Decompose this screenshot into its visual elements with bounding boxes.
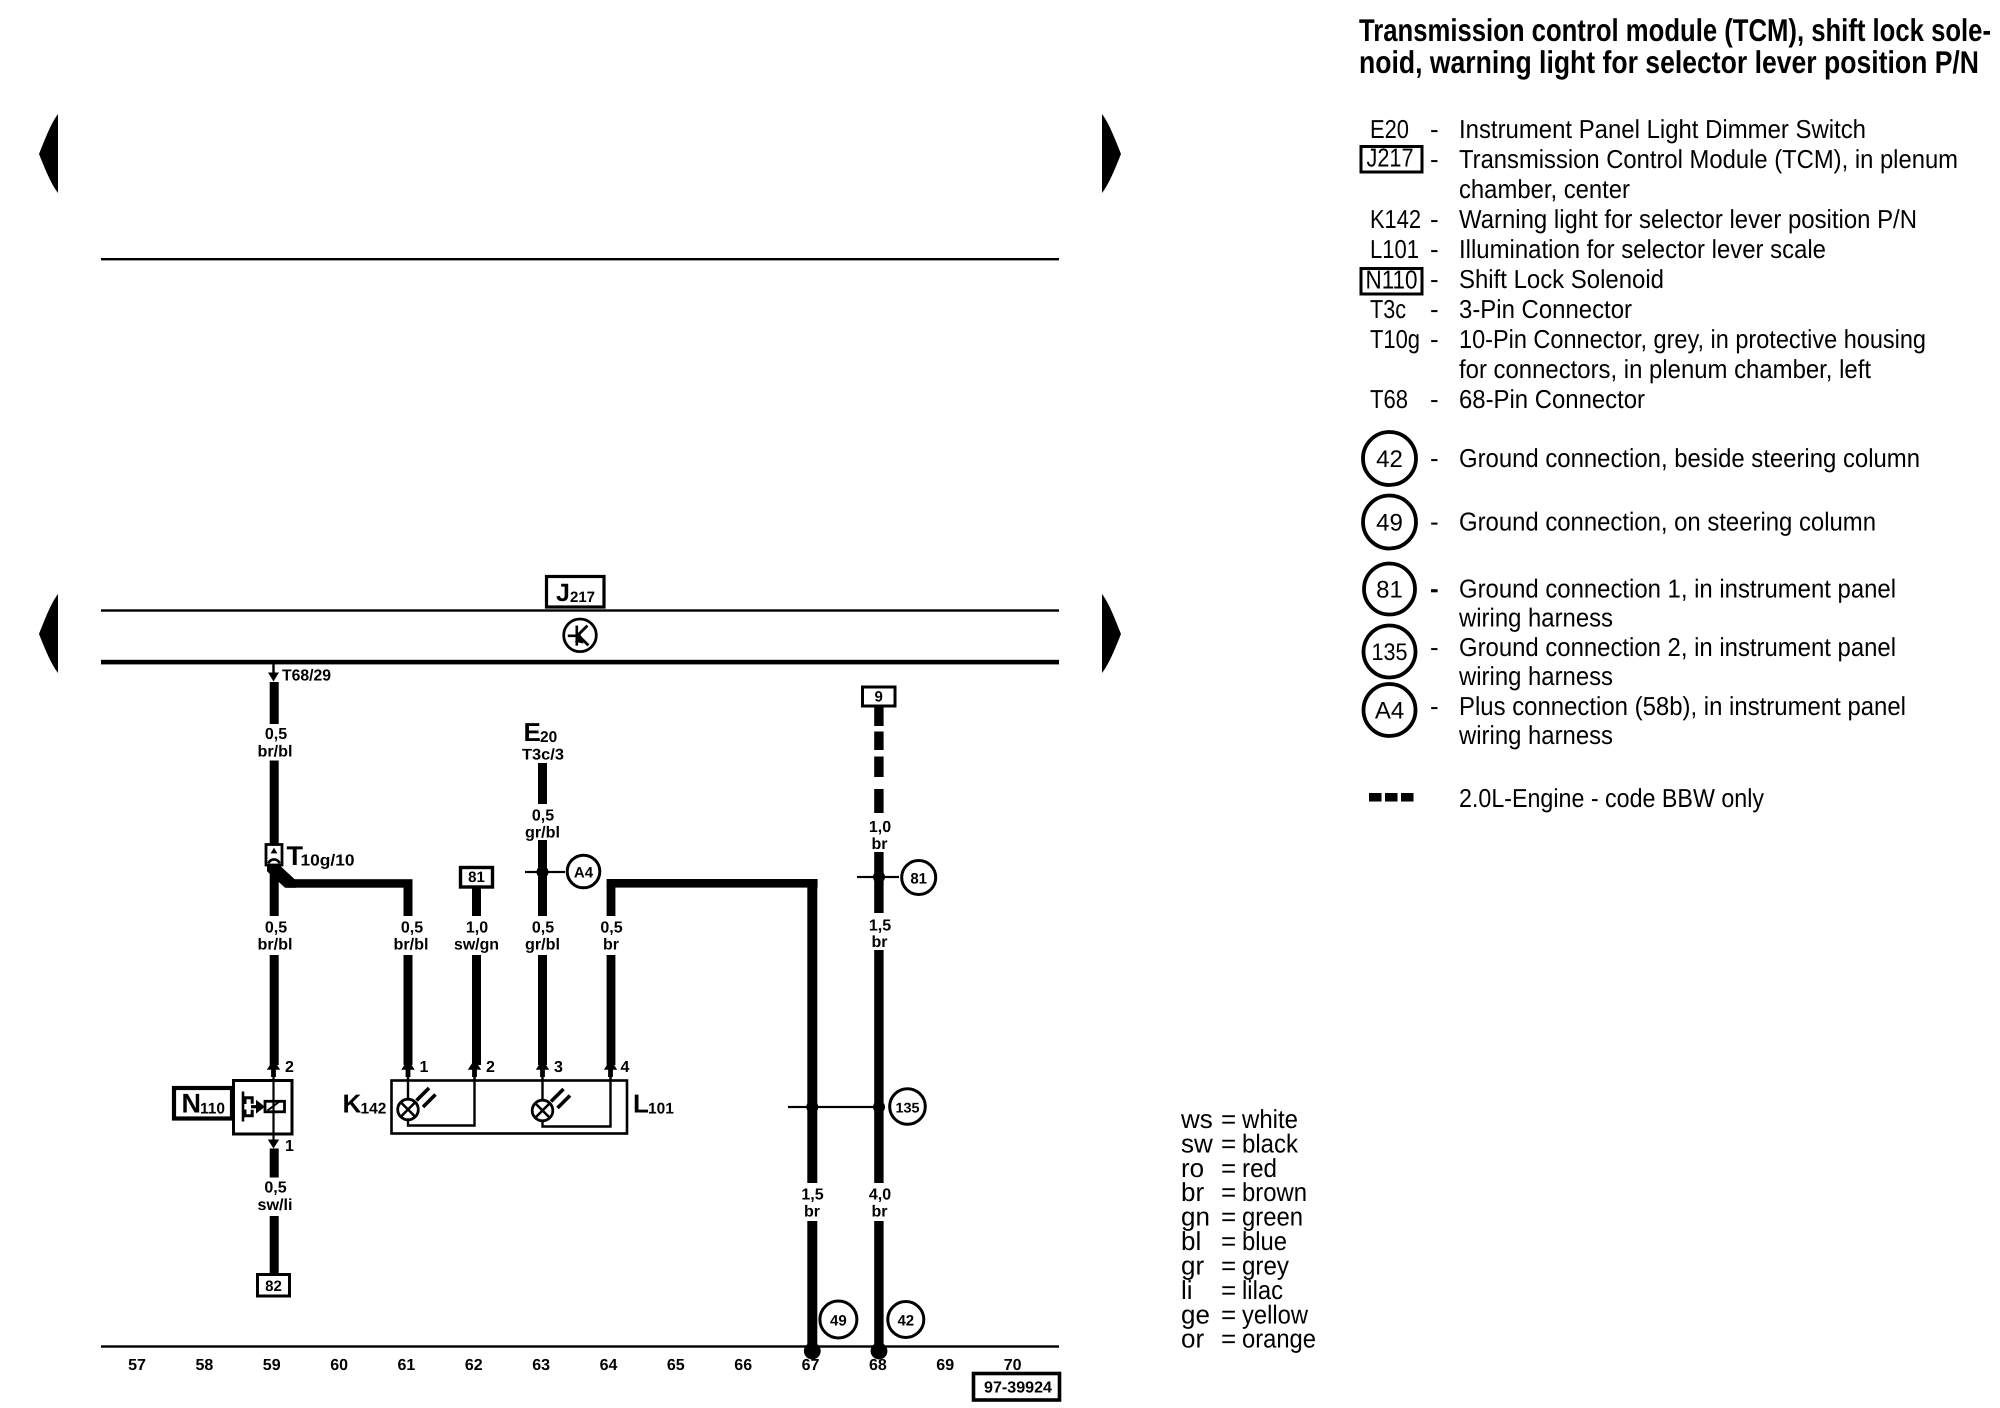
- svg-text:Transmission control module (T: Transmission control module (TCM), shift…: [1359, 12, 1991, 48]
- svg-text:E20: E20: [1370, 114, 1409, 144]
- svg-text:A4: A4: [1375, 698, 1404, 725]
- svg-text:L: L: [633, 1089, 649, 1119]
- svg-text:61: 61: [398, 1357, 416, 1374]
- svg-text:2: 2: [486, 1059, 495, 1076]
- svg-text:-: -: [1430, 443, 1439, 473]
- svg-text:69: 69: [936, 1357, 954, 1374]
- svg-text:br: br: [603, 937, 619, 954]
- svg-text:sw/li: sw/li: [258, 1197, 293, 1214]
- svg-text:66: 66: [734, 1357, 752, 1374]
- svg-text:J: J: [556, 579, 570, 607]
- svg-text:0,5: 0,5: [532, 808, 554, 825]
- svg-text:-: -: [1430, 507, 1439, 537]
- svg-text:20: 20: [540, 729, 557, 746]
- svg-text:-: -: [1430, 574, 1439, 604]
- svg-text:1,5: 1,5: [869, 918, 891, 935]
- svg-text:Ground connection, on steering: Ground connection, on steering column: [1459, 507, 1876, 537]
- svg-text:0,5: 0,5: [265, 726, 287, 743]
- svg-text:58: 58: [196, 1357, 214, 1374]
- svg-text:49: 49: [830, 1313, 847, 1330]
- svg-text:T10g: T10g: [1370, 324, 1420, 354]
- svg-text:orange: orange: [1242, 1324, 1316, 1354]
- svg-text:K: K: [343, 1089, 362, 1119]
- svg-text:64: 64: [600, 1357, 618, 1374]
- svg-text:N: N: [182, 1089, 202, 1119]
- svg-text:57: 57: [128, 1357, 146, 1374]
- svg-text:-: -: [1430, 264, 1439, 294]
- svg-text:chamber, center: chamber, center: [1459, 174, 1630, 204]
- svg-text:65: 65: [667, 1357, 685, 1374]
- svg-text:1: 1: [285, 1138, 294, 1155]
- svg-text:wiring harness: wiring harness: [1458, 661, 1613, 691]
- svg-text:70: 70: [1004, 1357, 1022, 1374]
- svg-text:62: 62: [465, 1357, 483, 1374]
- svg-text:49: 49: [1376, 510, 1403, 537]
- svg-text:60: 60: [330, 1357, 348, 1374]
- svg-text:110: 110: [200, 1101, 225, 1118]
- svg-text:T68/29: T68/29: [282, 668, 331, 685]
- svg-text:-: -: [1430, 114, 1439, 144]
- svg-text:82: 82: [265, 1278, 282, 1295]
- svg-text:gr/bl: gr/bl: [525, 825, 560, 842]
- svg-text:142: 142: [361, 1101, 387, 1118]
- svg-text:E: E: [524, 717, 541, 747]
- svg-text:0,5: 0,5: [401, 920, 423, 937]
- svg-text:Ground connection 2, in instru: Ground connection 2, in instrument panel: [1459, 632, 1896, 662]
- svg-text:97-39924: 97-39924: [984, 1380, 1052, 1397]
- svg-text:noid, warning light for select: noid, warning light for selector lever p…: [1359, 44, 1979, 80]
- svg-text:br: br: [872, 934, 888, 951]
- svg-text:-: -: [1430, 384, 1439, 414]
- svg-text:63: 63: [532, 1357, 550, 1374]
- svg-text:0,5: 0,5: [532, 920, 554, 937]
- svg-text:42: 42: [897, 1313, 914, 1330]
- svg-text:or: or: [1181, 1324, 1204, 1354]
- svg-text:3-Pin Connector: 3-Pin Connector: [1459, 294, 1632, 324]
- svg-text:2: 2: [285, 1059, 294, 1076]
- svg-text:br: br: [872, 1204, 888, 1221]
- svg-text:Ground connection, beside stee: Ground connection, beside steering colum…: [1459, 443, 1920, 473]
- svg-text:sw/gn: sw/gn: [454, 937, 499, 954]
- svg-text:T68: T68: [1370, 384, 1408, 414]
- svg-text:wiring harness: wiring harness: [1458, 720, 1613, 750]
- svg-text:-: -: [1430, 294, 1439, 324]
- svg-text:3: 3: [554, 1059, 563, 1076]
- svg-text:-: -: [1430, 234, 1439, 264]
- svg-text:=: =: [1221, 1324, 1236, 1354]
- svg-text:135: 135: [1372, 639, 1408, 666]
- svg-text:1,0: 1,0: [466, 920, 488, 937]
- svg-text:-: -: [1430, 144, 1439, 174]
- svg-text:4: 4: [621, 1059, 630, 1076]
- svg-text:81: 81: [468, 869, 485, 886]
- svg-text:1: 1: [420, 1059, 429, 1076]
- svg-text:br: br: [872, 836, 888, 853]
- svg-text:T3c: T3c: [1370, 294, 1406, 324]
- svg-text:10g/10: 10g/10: [301, 853, 355, 870]
- svg-text:68-Pin Connector: 68-Pin Connector: [1459, 384, 1645, 414]
- svg-text:9: 9: [875, 689, 883, 706]
- svg-text:Warning light for selector lev: Warning light for selector lever positio…: [1459, 204, 1917, 234]
- svg-text:0,5: 0,5: [600, 920, 622, 937]
- svg-text:1,0: 1,0: [869, 819, 891, 836]
- svg-text:J217: J217: [1367, 143, 1414, 173]
- svg-text:1,5: 1,5: [801, 1187, 823, 1204]
- svg-text:81: 81: [1376, 577, 1403, 604]
- svg-text:br: br: [804, 1204, 820, 1221]
- svg-text:br/bl: br/bl: [394, 937, 429, 954]
- svg-text:0,5: 0,5: [265, 920, 287, 937]
- svg-text:81: 81: [910, 871, 927, 888]
- svg-text:135: 135: [896, 1100, 920, 1116]
- svg-text:K142: K142: [1370, 204, 1421, 234]
- svg-text:L101: L101: [1370, 234, 1419, 264]
- svg-text:A4: A4: [574, 865, 594, 882]
- svg-text:10-Pin Connector, grey, in pro: 10-Pin Connector, grey, in protective ho…: [1459, 324, 1926, 354]
- svg-text:for connectors, in plenum cham: for connectors, in plenum chamber, left: [1459, 354, 1872, 384]
- svg-text:Plus connection (58b), in inst: Plus connection (58b), in instrument pan…: [1459, 691, 1906, 721]
- svg-text:-: -: [1430, 324, 1439, 354]
- svg-text:-: -: [1430, 204, 1439, 234]
- svg-text:2.0L-Engine - code BBW only: 2.0L-Engine - code BBW only: [1459, 783, 1764, 813]
- svg-text:Ground connection 1, in instru: Ground connection 1, in instrument panel: [1459, 574, 1896, 604]
- svg-text:Transmission Control Module (T: Transmission Control Module (TCM), in pl…: [1459, 144, 1958, 174]
- svg-text:59: 59: [263, 1357, 281, 1374]
- svg-text:Shift Lock Solenoid: Shift Lock Solenoid: [1459, 264, 1664, 294]
- svg-text:gr/bl: gr/bl: [525, 937, 560, 954]
- svg-text:br/bl: br/bl: [258, 937, 293, 954]
- svg-text:101: 101: [648, 1101, 674, 1118]
- svg-text:T3c/3: T3c/3: [522, 747, 564, 764]
- svg-text:67: 67: [802, 1357, 820, 1374]
- svg-text:0,5: 0,5: [264, 1180, 286, 1197]
- svg-text:br/bl: br/bl: [258, 744, 293, 761]
- svg-text:68: 68: [869, 1357, 887, 1374]
- svg-text:Illumination for selector leve: Illumination for selector lever scale: [1459, 234, 1826, 264]
- svg-text:N110: N110: [1366, 265, 1418, 295]
- svg-text:Instrument Panel Light Dimmer: Instrument Panel Light Dimmer Switch: [1459, 114, 1866, 144]
- svg-text:217: 217: [570, 589, 595, 606]
- svg-text:42: 42: [1376, 446, 1403, 473]
- svg-text:4,0: 4,0: [869, 1187, 891, 1204]
- svg-text:-: -: [1430, 632, 1439, 662]
- svg-text:wiring harness: wiring harness: [1458, 603, 1613, 633]
- svg-text:-: -: [1430, 691, 1439, 721]
